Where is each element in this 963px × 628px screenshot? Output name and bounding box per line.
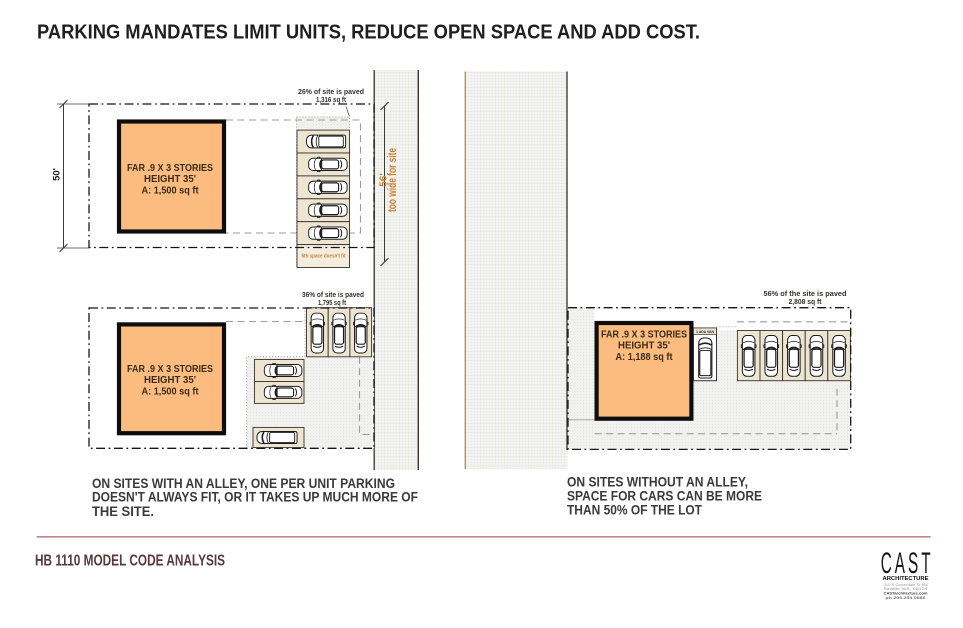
svg-text:FAR .9 X 3 STORIES: FAR .9 X 3 STORIES [127, 163, 213, 174]
svg-text:2,808 sq ft: 2,808 sq ft [789, 297, 822, 306]
svg-text:A: 1,500 sq ft: A: 1,500 sq ft [142, 387, 200, 398]
svg-text:HEIGHT 35': HEIGHT 35' [144, 174, 196, 185]
svg-text:PARKING MANDATES LIMIT UNITS,: PARKING MANDATES LIMIT UNITS, REDUCE OPE… [37, 21, 700, 44]
svg-text:1,795 sq ft: 1,795 sq ft [318, 298, 346, 307]
svg-text:FAR .9 X 3 STORIES: FAR .9 X 3 STORIES [601, 330, 687, 341]
svg-text:THE SITE.: THE SITE. [92, 504, 154, 520]
svg-text:HB 1110 MODEL CODE ANALYSIS: HB 1110 MODEL CODE ANALYSIS [35, 552, 225, 569]
svg-text:THAN 50% OF THE LOT: THAN 50% OF THE LOT [567, 502, 702, 518]
svg-text:1,316 sq ft: 1,316 sq ft [316, 95, 346, 104]
svg-text:A: 1,188 sq ft: A: 1,188 sq ft [616, 352, 674, 363]
svg-text:ARCHITECTURE: ARCHITECTURE [883, 576, 930, 582]
svg-text:CASTarchitecture.com: CASTarchitecture.com [884, 591, 929, 595]
svg-text:6th space doesn't fit: 6th space doesn't fit [302, 253, 346, 259]
svg-text:FAR .9 X 3 STORIES: FAR .9 X 3 STORIES [127, 364, 213, 375]
svg-text:too wide for site: too wide for site [387, 148, 399, 212]
svg-text:HEIGHT 35': HEIGHT 35' [144, 375, 196, 386]
svg-text:50': 50' [52, 168, 63, 181]
svg-text:Seattle WA, 98124: Seattle WA, 98124 [884, 587, 928, 591]
svg-text:CAST: CAST [881, 547, 934, 580]
svg-text:A: 1,500 sq ft: A: 1,500 sq ft [142, 186, 200, 197]
svg-text:1 ADA VAN: 1 ADA VAN [696, 330, 714, 334]
svg-text:HEIGHT 35': HEIGHT 35' [618, 341, 670, 352]
svg-text:ph 206.254.9886: ph 206.254.9886 [886, 596, 926, 600]
